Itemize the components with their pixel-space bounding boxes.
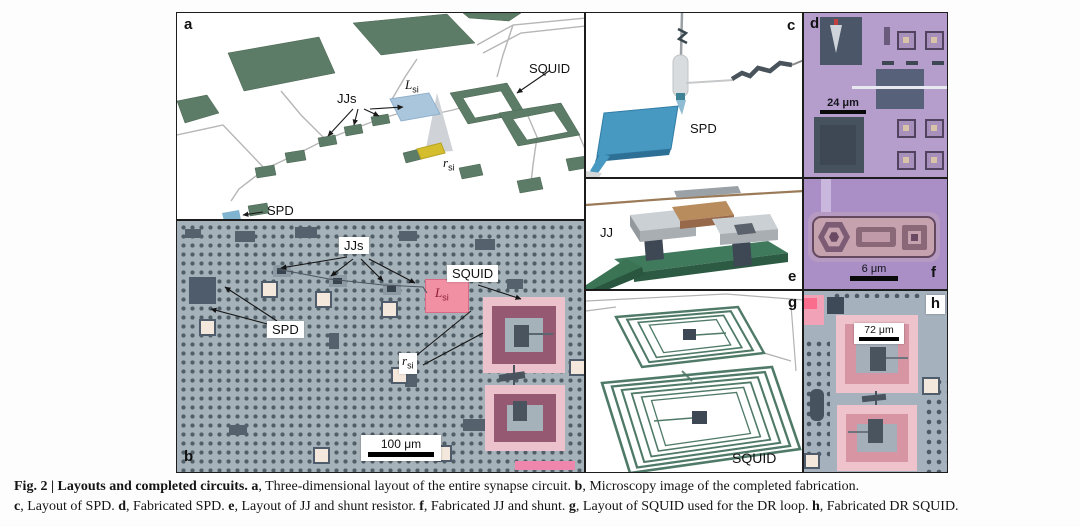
square-ring (902, 225, 927, 250)
device-square (876, 69, 924, 109)
label-r-si: rsi (399, 353, 417, 374)
via-pad (925, 151, 944, 170)
caption-line-2: c, Layout of SPD. d, Fabricated SPD. e, … (14, 497, 1070, 517)
shunt-slot (856, 227, 896, 247)
dash-mark (882, 61, 894, 65)
scale-bar-72um: 72 μm (854, 323, 904, 344)
panel-letter-a: a (184, 17, 192, 32)
panel-f-fabricated-jj: 6 μm f (803, 178, 948, 290)
hex-ring-mid (824, 227, 844, 247)
dr-loop-lower (837, 405, 917, 471)
spd-dark-block (814, 117, 864, 173)
via-pad (897, 119, 916, 138)
panel-h-fabricated-squid: 72 μm h (803, 290, 948, 473)
figure-caption: Fig. 2 | Layouts and completed circuits.… (14, 477, 1070, 517)
label-jjs: JJs (337, 91, 357, 106)
dash-mark (932, 61, 944, 65)
spd-square-3d (222, 210, 241, 220)
scale-bar-6um: 6 μm (850, 263, 898, 281)
panel-letter-b: b (184, 449, 193, 464)
metal-bar (884, 27, 890, 45)
scale-bar-line (820, 110, 866, 114)
panel-d-fabricated-spd: 24 μm d (803, 12, 948, 178)
panel-letter-h: h (931, 295, 940, 312)
panel-c-render (586, 13, 803, 178)
scale-bar-line (368, 452, 434, 457)
via-strip (832, 291, 924, 298)
scale-text: 72 μm (864, 324, 893, 336)
label-r-si: rsi (443, 155, 455, 176)
nanowire-line (852, 86, 948, 89)
scale-bar-24um: 24 μm (820, 97, 866, 114)
squid-loops-3d (450, 83, 580, 146)
pink-pad-bright (804, 298, 817, 309)
contact-pad (922, 377, 940, 395)
panel-a-render (177, 13, 585, 220)
jj-blocks (630, 201, 778, 245)
dark-blob (810, 389, 824, 421)
label-squid: SQUID (447, 265, 498, 282)
r-subscript: si (448, 163, 455, 173)
panel-letter-h-box: h (926, 295, 945, 314)
contact-pad (804, 453, 820, 469)
panel-a-3d-layout: a JJs SQUID Lsi rsi SPD (176, 12, 585, 220)
panel-letter-g: g (788, 295, 797, 310)
label-spd: SPD (267, 203, 294, 218)
loop-tab (868, 419, 883, 443)
label-l-si: Lsi (405, 77, 419, 98)
loop-stub (886, 357, 908, 359)
scale-text: 6 μm (862, 263, 887, 275)
panel-e-render (586, 179, 803, 290)
label-squid: SQUID (732, 451, 776, 466)
via-pad (925, 119, 944, 138)
spd-taper-region (820, 17, 862, 65)
scale-text: 24 μm (827, 97, 859, 109)
via-pad (897, 31, 916, 50)
panel-letter-e: e (788, 269, 796, 284)
inner-block (820, 125, 856, 165)
panel-letter-f: f (931, 265, 936, 280)
label-jj: JJ (600, 225, 613, 240)
label-jjs: JJs (339, 237, 369, 254)
dark-square (827, 297, 844, 314)
resistor-rsi-strip (417, 143, 445, 159)
label-spd: SPD (267, 321, 304, 338)
r-subscript: si (407, 361, 414, 371)
shunt-bar (862, 232, 890, 242)
dash-mark (906, 61, 918, 65)
via-pad (925, 31, 944, 50)
panel-e-jj-layout: JJ e (585, 178, 803, 290)
hex-core (829, 232, 839, 242)
loop-tab (870, 347, 886, 371)
spd-meander-square (597, 106, 678, 156)
label-spd: SPD (690, 121, 717, 136)
scale-bar-100um: 100 μm (361, 435, 441, 461)
figure-2: a JJs SQUID Lsi rsi SPD (176, 12, 948, 473)
scale-bar-line (850, 276, 898, 281)
panel-g-squid-layout: g SQUID (585, 290, 803, 473)
square-core (911, 234, 918, 241)
scale-bar-line (859, 337, 899, 341)
l-subscript: si (412, 85, 419, 95)
figure-page: a JJs SQUID Lsi rsi SPD (0, 0, 1080, 527)
panel-letter-d: d (810, 16, 819, 31)
pink-pad (804, 295, 824, 325)
loop-connector (862, 394, 886, 402)
jj-shunt-body (812, 216, 936, 258)
loop-stub (848, 431, 868, 433)
taper-needle (830, 25, 842, 53)
scale-text: 100 μm (381, 437, 421, 451)
label-squid: SQUID (529, 61, 570, 76)
caption-line-1: Fig. 2 | Layouts and completed circuits.… (14, 477, 1070, 497)
panel-g-render (586, 291, 803, 473)
panel-letter-c: c (787, 18, 795, 33)
green-base-layer (586, 241, 788, 290)
square-ring-inner (908, 231, 921, 244)
hex-ring-outer (818, 221, 850, 253)
via-pad (897, 151, 916, 170)
panel-c-spd-layout: c SPD (585, 12, 803, 178)
panel-b-microscopy: Lsi (176, 220, 585, 473)
